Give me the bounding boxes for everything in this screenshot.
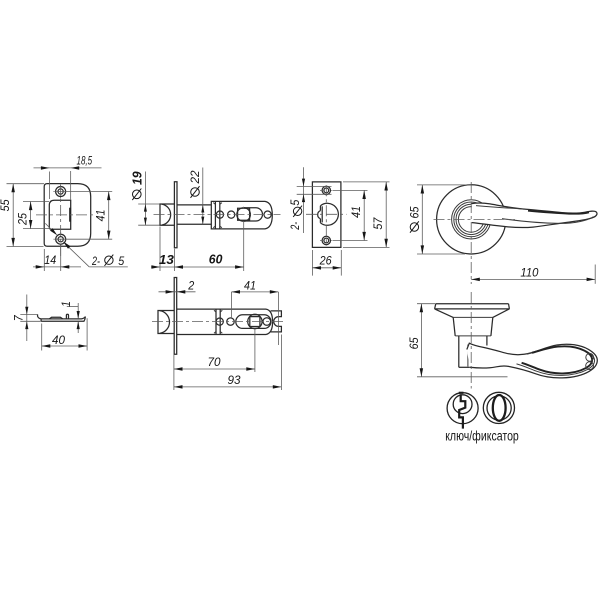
svg-text:40: 40	[52, 334, 66, 347]
svg-text:60: 60	[209, 252, 223, 267]
svg-text:26: 26	[319, 255, 332, 268]
svg-text:93: 93	[228, 374, 242, 387]
svg-text:65: 65	[408, 206, 421, 219]
svg-text:5: 5	[289, 199, 302, 206]
svg-text:41: 41	[95, 210, 108, 222]
svg-text:110: 110	[520, 266, 539, 279]
svg-text:13: 13	[159, 252, 175, 267]
svg-text:2-: 2-	[91, 255, 100, 268]
svg-text:1: 1	[60, 301, 73, 307]
svg-text:2: 2	[187, 280, 194, 293]
svg-text:ключ/фиксатор: ключ/фиксатор	[445, 429, 519, 444]
svg-text:2-: 2-	[289, 222, 302, 231]
svg-text:14: 14	[44, 254, 57, 267]
svg-text:55: 55	[0, 199, 12, 212]
svg-text:65: 65	[408, 337, 421, 350]
svg-text:5: 5	[118, 255, 125, 268]
svg-text:25: 25	[16, 212, 29, 225]
svg-text:70: 70	[208, 356, 222, 369]
svg-text:57: 57	[372, 217, 385, 230]
svg-text:41: 41	[244, 279, 256, 292]
svg-text:7: 7	[13, 315, 26, 322]
svg-text:41: 41	[350, 206, 363, 218]
svg-text:18,5: 18,5	[77, 155, 93, 168]
svg-text:19: 19	[129, 171, 144, 185]
svg-text:22: 22	[189, 170, 202, 185]
